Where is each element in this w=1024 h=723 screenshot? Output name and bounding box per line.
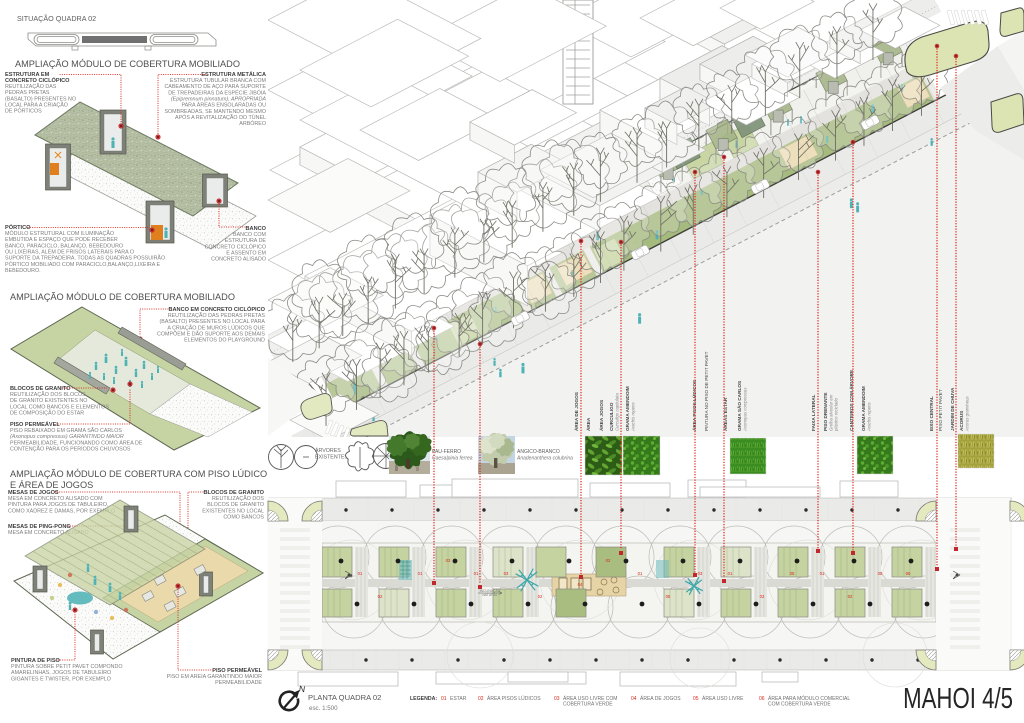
svg-text:04: 04 <box>631 696 637 702</box>
svg-text:plástico reciclado: plástico reciclado <box>834 397 839 432</box>
svg-text:ÁREAS ESTAR: ÁREAS ESTAR <box>722 397 728 431</box>
svg-text:AMPLIAÇÃO MÓDULO DE COBERTURA: AMPLIAÇÃO MÓDULO DE COBERTURA MOBILIADO <box>10 292 235 302</box>
svg-text:01: 01 <box>728 571 733 576</box>
svg-text:AMPLIAÇÃO MÓDULO DE COBERTURA: AMPLIAÇÃO MÓDULO DE COBERTURA COM PISO L… <box>10 469 267 479</box>
svg-text:REUTILIZAÇÃO DOS: REUTILIZAÇÃO DOS <box>212 495 264 502</box>
svg-text:03: 03 <box>504 571 509 576</box>
svg-text:03: 03 <box>554 696 560 702</box>
svg-text:ELEMENTOS DO PLAYGROUND: ELEMENTOS DO PLAYGROUND <box>184 338 265 344</box>
svg-text:BLOCOS DE GRANITO: BLOCOS DE GRANITO <box>207 502 264 508</box>
svg-text:LOCAL PARA A CRIAÇÃO: LOCAL PARA A CRIAÇÃO <box>5 101 68 108</box>
svg-text:(Axonopus compressus) GARANTIN: (Axonopus compressus) GARANTINDO MAIOR <box>10 434 124 440</box>
svg-text:Arachis repens: Arachis repens <box>866 401 871 432</box>
svg-text:EXISTENTES: EXISTENTES <box>315 455 348 461</box>
svg-text:A CRIAÇÃO DE MUROS LÚDICOS QUE: A CRIAÇÃO DE MUROS LÚDICOS QUE <box>167 324 265 331</box>
svg-text:01: 01 <box>418 571 423 576</box>
svg-text:ARBÓREO: ARBÓREO <box>239 120 266 127</box>
svg-text:PISO DRENANTE: PISO DRENANTE <box>823 392 828 431</box>
svg-text:COM COBERTURA VERDE: COM COBERTURA VERDE <box>768 702 831 708</box>
svg-text:ESTAR: ESTAR <box>450 696 467 702</box>
svg-text:E ASSENTO EM: E ASSENTO EM <box>226 250 266 256</box>
svg-text:DE PÓRTICOS: DE PÓRTICOS <box>5 108 42 115</box>
svg-text:01: 01 <box>441 696 447 702</box>
svg-text:APÓS A REVITALIZAÇÃO DO TÚNEL: APÓS A REVITALIZAÇÃO DO TÚNEL <box>175 114 266 121</box>
svg-text:CONCRETO ALISADO: CONCRETO ALISADO <box>211 257 266 263</box>
svg-text:Grelha alveolar em: Grelha alveolar em <box>828 394 833 431</box>
svg-text:FAIXA LATERAL: FAIXA LATERAL <box>811 394 816 431</box>
svg-text:PLANTA QUADRA 02: PLANTA QUADRA 02 <box>308 693 381 702</box>
svg-text:PINTURA SOBRE PETIT PAVET COMP: PINTURA SOBRE PETIT PAVET COMPONDO <box>11 664 123 670</box>
svg-text:BANCO, PARACICLO, BALANÇO, BEB: BANCO, PARACICLO, BALANÇO, BEBEDOURO <box>5 243 123 249</box>
svg-text:ÁREA DE JOGOS: ÁREA DE JOGOS <box>640 695 681 702</box>
svg-text:LOCAL COMO BANCOS E ELEMENTOS: LOCAL COMO BANCOS E ELEMENTOS <box>10 404 109 410</box>
svg-text:PÓRTICO: PÓRTICO <box>5 223 31 231</box>
svg-text:(BASALTO) PRESENTES NO LOCAL P: (BASALTO) PRESENTES NO LOCAL PARA <box>159 319 265 325</box>
svg-text:BEBEDOURO.: BEBEDOURO. <box>5 268 41 274</box>
svg-text:Caesalpinia ferrea: Caesalpinia ferrea <box>432 456 473 462</box>
svg-text:PISO PERMEÁVEL: PISO PERMEÁVEL <box>10 421 60 428</box>
svg-text:02: 02 <box>478 696 484 702</box>
svg-text:02: 02 <box>538 594 543 599</box>
svg-text:GRAMA SÃO CARLOS: GRAMA SÃO CARLOS <box>736 381 742 431</box>
svg-text:01: 01 <box>820 571 825 576</box>
svg-text:01: 01 <box>358 571 363 576</box>
svg-text:LEGENDA:: LEGENDA: <box>410 696 437 702</box>
svg-text:ESTRUTURA METÁLICA: ESTRUTURA METÁLICA <box>201 71 266 78</box>
svg-text:E ÁREA DE JOGOS: E ÁREA DE JOGOS <box>10 480 93 490</box>
svg-text:(BASALTO) PRESENTES NO: (BASALTO) PRESENTES NO <box>5 96 76 102</box>
svg-text:GRAMA AMENDOIM: GRAMA AMENDOIM <box>625 386 630 431</box>
svg-text:PISO REBAIXADO EM GRAMA SÃO CA: PISO REBAIXADO EM GRAMA SÃO CARLOS <box>10 427 122 434</box>
svg-text:DE TREPADEIRAS DA ESPÉCIE JIBÓ: DE TREPADEIRAS DA ESPÉCIE JIBÓIA <box>168 89 266 96</box>
svg-text:Acorus gramineus: Acorus gramineus <box>964 396 969 432</box>
svg-text:02: 02 <box>606 558 611 563</box>
svg-text:CABEAMENTO DE AÇO PARA SUPORTE: CABEAMENTO DE AÇO PARA SUPORTE <box>164 84 266 90</box>
svg-text:03: 03 <box>698 571 703 576</box>
svg-text:CANTEIROS COM ÁRVORE: CANTEIROS COM ÁRVORE <box>848 370 854 431</box>
svg-text:05: 05 <box>693 696 699 702</box>
svg-text:ESTRUTURA TUBULAR BRANCA COM: ESTRUTURA TUBULAR BRANCA COM <box>170 78 267 84</box>
svg-text:06: 06 <box>906 571 911 576</box>
svg-text:PISO EM AREIA GARANTINDO MAIOR: PISO EM AREIA GARANTINDO MAIOR <box>167 674 262 680</box>
svg-text:PISO PETIT PAVET: PISO PETIT PAVET <box>938 389 943 431</box>
svg-text:PISO PERMEÁVEL: PISO PERMEÁVEL <box>212 667 262 674</box>
svg-text:GRAMA AMENDOIM: GRAMA AMENDOIM <box>861 386 866 431</box>
svg-text:Arachis repens: Arachis repens <box>630 401 635 432</box>
svg-text:02: 02 <box>848 594 853 599</box>
svg-text:MÓDULO ESTRUTURAL COM ILUMINAÇ: MÓDULO ESTRUTURAL COM ILUMINAÇÃO <box>5 230 114 237</box>
svg-text:EIXO CENTRAL: EIXO CENTRAL <box>929 396 934 431</box>
svg-text:EMBUTIDA E ESPAÇO QUE PODE REC: EMBUTIDA E ESPAÇO QUE PODE RECEBER <box>5 237 118 243</box>
svg-text:REUTILIZAÇÃO DAS PEDRAS PRETAS: REUTILIZAÇÃO DAS PEDRAS PRETAS <box>168 312 266 319</box>
svg-text:COMPÕEM E DÃO SUPORTE AOS DEMA: COMPÕEM E DÃO SUPORTE AOS DEMAIS <box>157 330 265 337</box>
svg-text:(Epipremnum pinnatum), APROPRI: (Epipremnum pinnatum), APROPRIADA <box>171 96 267 102</box>
svg-text:MAHOI 4/5: MAHOI 4/5 <box>903 683 1013 714</box>
svg-text:BANCO EM CONCRETO CICLÓPICO: BANCO EM CONCRETO CICLÓPICO <box>168 305 265 313</box>
svg-text:PERMEABILIDADE, FUNCIONANDO CO: PERMEABILIDADE, FUNCIONANDO COMO ÁREA DE <box>10 439 143 446</box>
svg-text:EXISTENTES NO LOCAL: EXISTENTES NO LOCAL <box>202 508 264 514</box>
svg-text:05: 05 <box>790 571 795 576</box>
svg-text:DE COMPOSIÇÃO DO ESTAR: DE COMPOSIÇÃO DO ESTAR <box>10 409 84 416</box>
svg-text:05: 05 <box>666 594 671 599</box>
svg-text:ANGICO-BRANCO: ANGICO-BRANCO <box>517 449 560 455</box>
svg-text:SITUAÇÃO QUADRA 02: SITUAÇÃO QUADRA 02 <box>17 14 96 23</box>
svg-text:ÁREA USO LIVRE: ÁREA USO LIVRE <box>702 695 744 702</box>
svg-text:esc. 1:500: esc. 1:500 <box>309 705 338 712</box>
svg-text:01: 01 <box>474 571 479 576</box>
svg-text:Anadenanthera colubrina: Anadenanthera colubrina <box>516 456 573 462</box>
svg-text:ACORUS: ACORUS <box>959 411 964 431</box>
svg-text:OU LIXEIRAS, ALÉM DE FRISOS LA: OU LIXEIRAS, ALÉM DE FRISOS LATERAIS PAR… <box>5 248 134 255</box>
svg-text:COBERTURA VERDE: COBERTURA VERDE <box>563 702 613 708</box>
svg-text:ÁREA JOGOS: ÁREA JOGOS <box>598 400 604 431</box>
svg-text:ÁREA PISOS LÚDICOS: ÁREA PISOS LÚDICOS <box>487 695 541 702</box>
svg-text:GIGANTES E TWISTER, POR EXEMPL: GIGANTES E TWISTER, POR EXEMPLO <box>11 676 111 682</box>
svg-text:06: 06 <box>759 696 765 702</box>
svg-text:COMO BANCOS: COMO BANCOS <box>223 514 264 520</box>
svg-text:REUTILIZAÇÃO DAS: REUTILIZAÇÃO DAS <box>5 83 57 90</box>
svg-text:PINTURA NO PISO DE PETIT PAVET: PINTURA NO PISO DE PETIT PAVET <box>704 351 709 431</box>
svg-text:AMARELINHAS, JOGOS DE TABULEIR: AMARELINHAS, JOGOS DE TABULEIRO <box>11 670 111 676</box>
svg-text:ÁREA: ÁREA <box>585 417 591 431</box>
svg-text:ÁREA DE JOGOS: ÁREA DE JOGOS <box>573 392 579 431</box>
svg-text:ÁRVORES: ÁRVORES <box>315 447 341 454</box>
svg-text:MESA EM CONCRETO ALISADO COM: MESA EM CONCRETO ALISADO COM <box>8 496 103 502</box>
svg-text:PARA ÁREAS ENSOLARADAS OU: PARA ÁREAS ENSOLARADAS OU <box>181 102 266 109</box>
svg-text:02: 02 <box>760 594 765 599</box>
svg-text:PEDRAS PRETAS: PEDRAS PRETAS <box>5 90 50 96</box>
svg-text:BANCO COM: BANCO COM <box>233 232 267 238</box>
svg-text:CONCRETO CICLÓPICO: CONCRETO CICLÓPICO <box>5 76 70 84</box>
svg-text:Axonopus compressus: Axonopus compressus <box>742 387 747 432</box>
svg-text:02: 02 <box>378 594 383 599</box>
svg-text:CURCULIGO: CURCULIGO <box>609 402 614 431</box>
svg-text:SOMBREADAS, SE MANTENDO MESMO: SOMBREADAS, SE MANTENDO MESMO <box>164 109 266 115</box>
svg-text:CONCRETO CICLÓPICO: CONCRETO CICLÓPICO <box>205 243 266 250</box>
svg-text:Curculigo capitulata: Curculigo capitulata <box>614 393 619 431</box>
svg-text:ÁREA PISOS LÚDICOS: ÁREA PISOS LÚDICOS <box>691 380 697 431</box>
svg-text:PAU-FERRO: PAU-FERRO <box>432 449 461 455</box>
svg-text:NATURAL: NATURAL <box>482 593 498 597</box>
svg-text:ESTRUTURA DE: ESTRUTURA DE <box>225 238 267 244</box>
svg-text:03: 03 <box>446 558 451 563</box>
svg-text:REUTILIZAÇÃO DOS BLOCOS: REUTILIZAÇÃO DOS BLOCOS <box>10 391 86 398</box>
svg-text:CONTENÇÃO PARA OS PERÍODOS CHU: CONTENÇÃO PARA OS PERÍODOS CHUVOSOS <box>10 445 131 452</box>
svg-text:SUPORTE DA TREPADEIRA. TODAS A: SUPORTE DA TREPADEIRA. TODAS AS QUADRAS … <box>5 255 165 262</box>
svg-text:PERMEABILIDADE: PERMEABILIDADE <box>215 680 262 686</box>
svg-text:DE GRANITO EXISTENTES NO: DE GRANITO EXISTENTES NO <box>10 398 87 404</box>
svg-text:05: 05 <box>878 571 883 576</box>
svg-text:PÓRTICO MOBILIADO COM PARACICL: PÓRTICO MOBILIADO COM PARACICLO,BALANÇO,… <box>5 261 161 268</box>
svg-text:PINTURA PARA JOGOS DE TABULEIR: PINTURA PARA JOGOS DE TABULEIRO, <box>8 502 108 508</box>
svg-text:AMPLIAÇÃO MÓDULO DE COBERTURA: AMPLIAÇÃO MÓDULO DE COBERTURA MOBILIADO <box>15 59 240 69</box>
svg-text:01: 01 <box>638 571 643 576</box>
svg-text:04: 04 <box>578 582 583 587</box>
svg-text:JARDIM DE CHUVA: JARDIM DE CHUVA <box>950 387 955 431</box>
